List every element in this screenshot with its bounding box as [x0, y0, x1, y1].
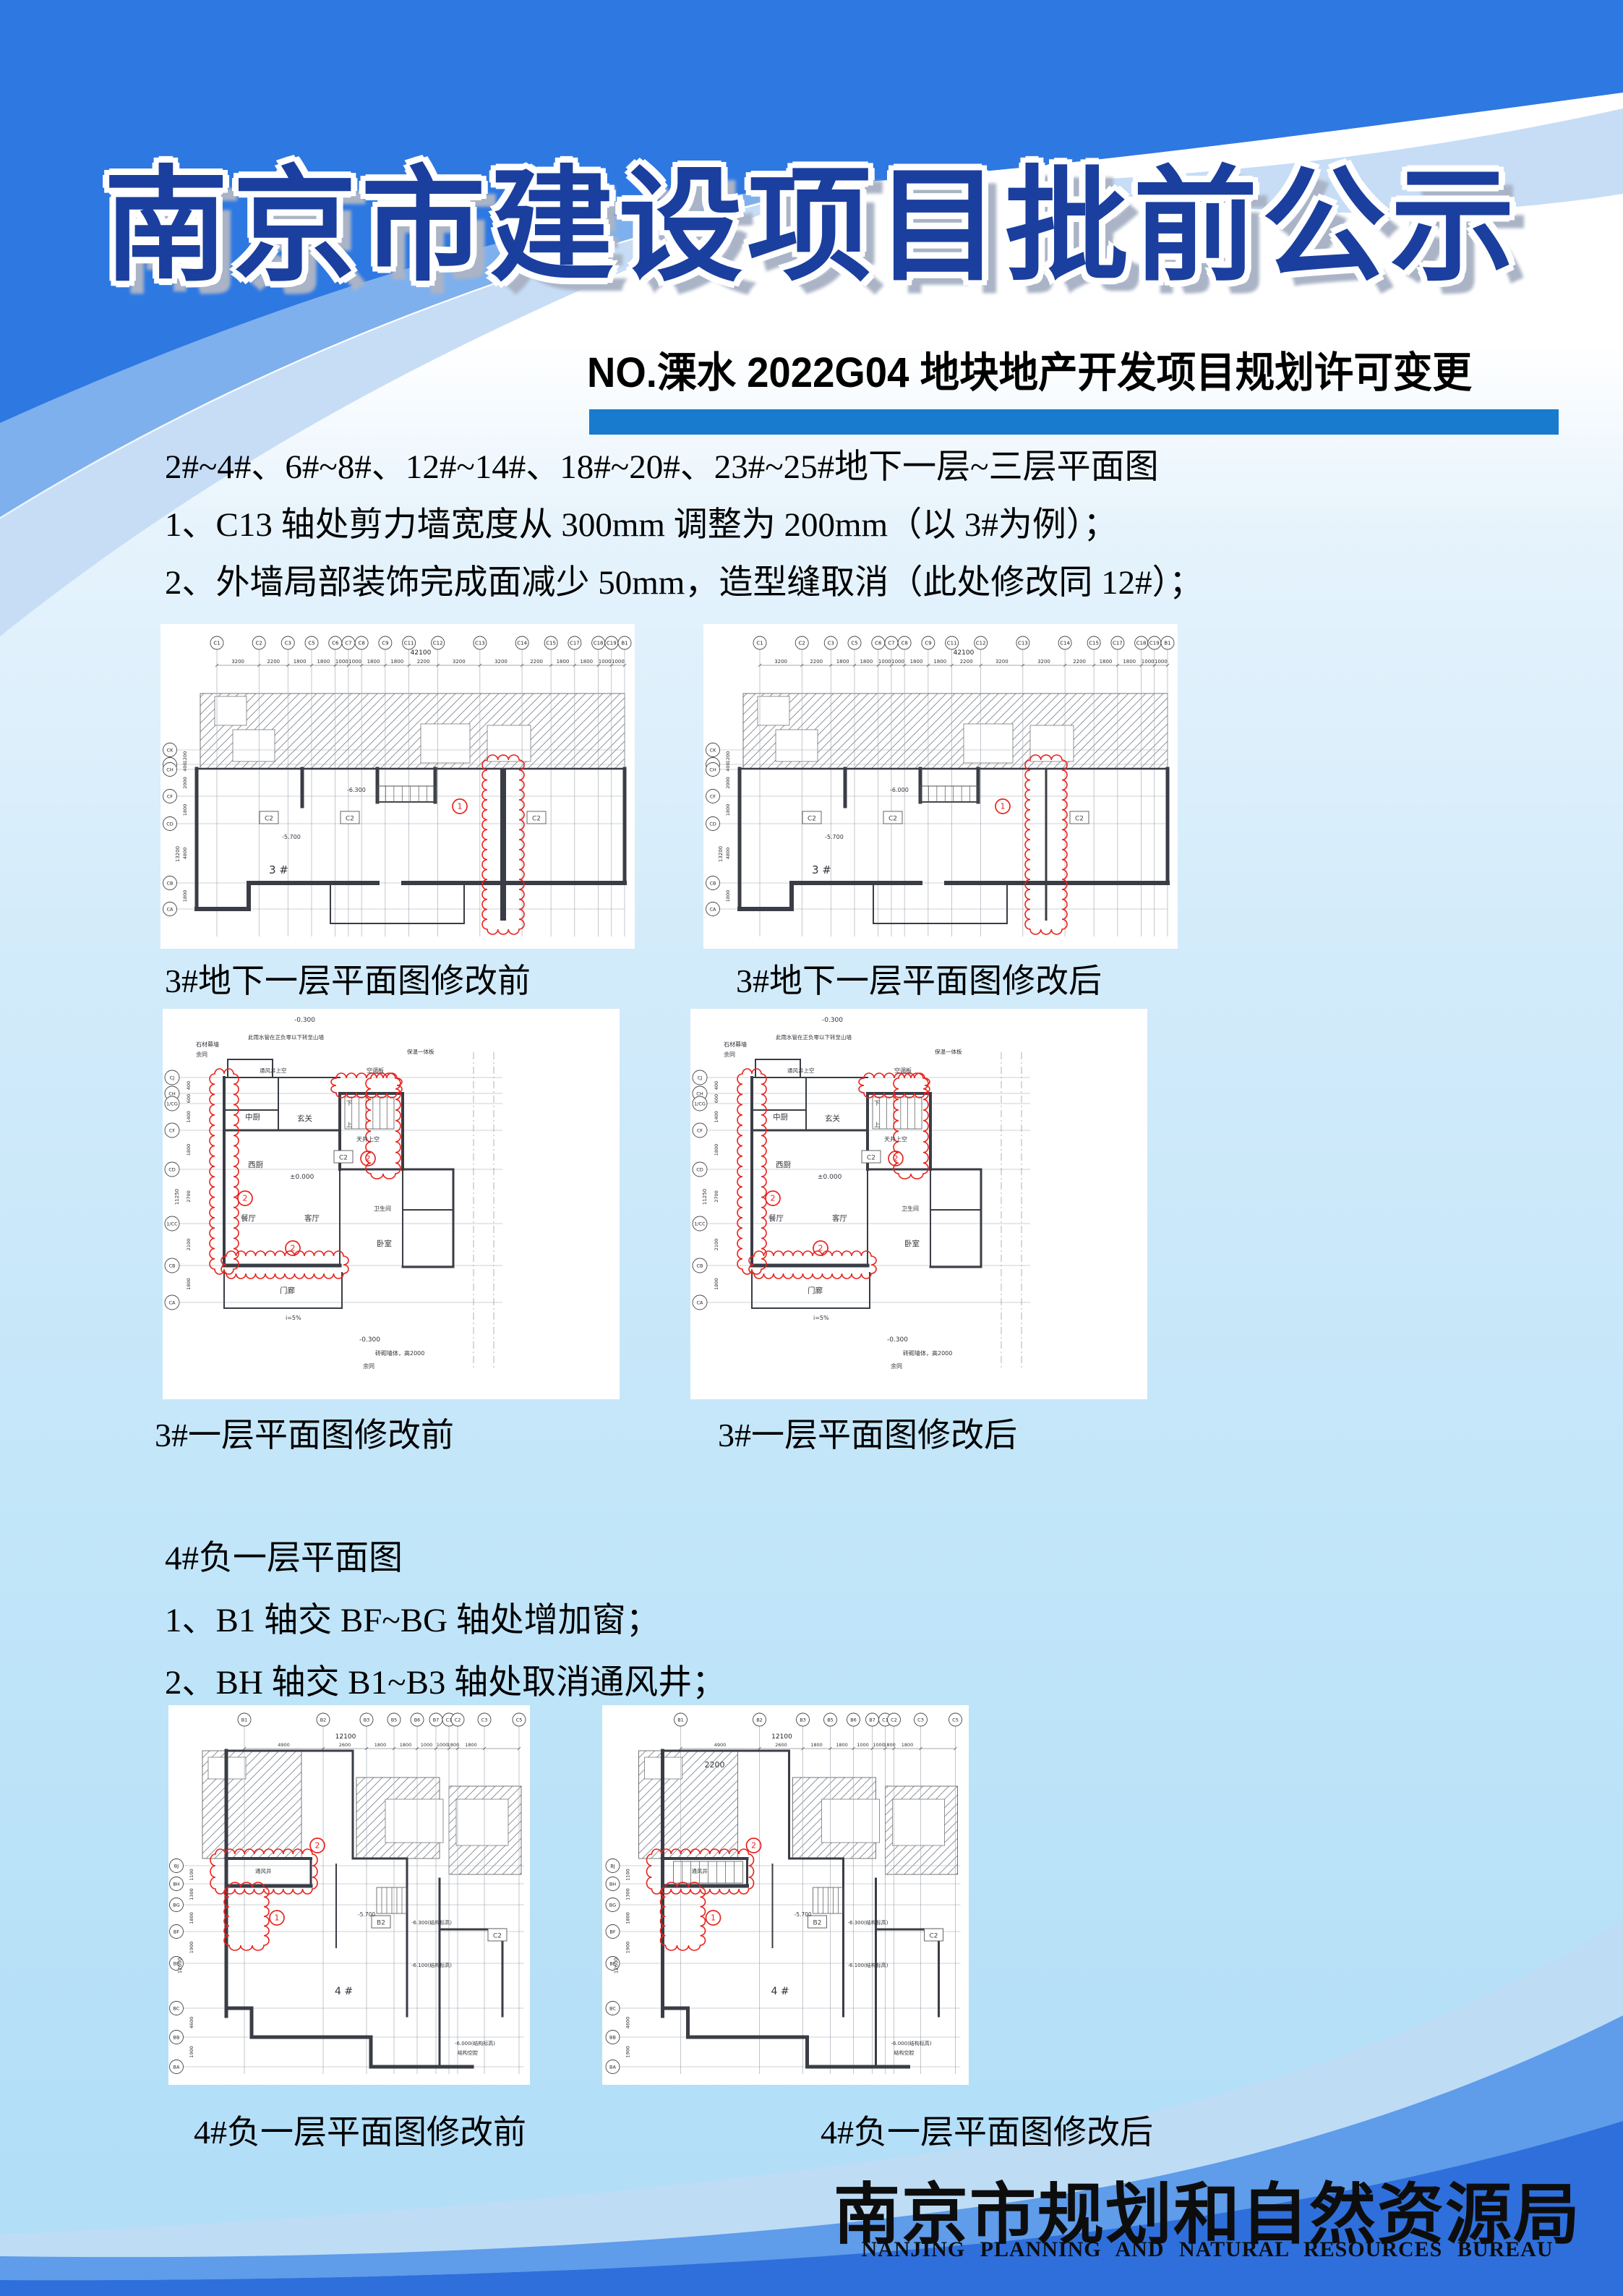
- caption-plan5: 4#负一层平面图修改前: [194, 2106, 526, 2154]
- svg-text:C2: C2: [339, 1155, 348, 1162]
- svg-text:客厅: 客厅: [304, 1213, 320, 1223]
- svg-text:此雨水管在正负零以下转至山墙: 此雨水管在正负零以下转至山墙: [248, 1033, 324, 1041]
- svg-text:1800: 1800: [860, 659, 873, 665]
- svg-text:BH: BH: [609, 1881, 616, 1887]
- caption-plan6: 4#负一层平面图修改后: [821, 2106, 1153, 2154]
- svg-text:B2: B2: [813, 1920, 822, 1927]
- svg-text:1/CG: 1/CG: [694, 1101, 706, 1106]
- svg-text:2600: 2600: [775, 1742, 787, 1748]
- svg-text:2000: 2000: [725, 777, 731, 789]
- svg-text:中厨: 中厨: [773, 1112, 789, 1122]
- svg-text:1/CC: 1/CC: [166, 1221, 178, 1226]
- svg-text:CA: CA: [697, 1299, 704, 1305]
- svg-text:1900: 1900: [189, 2046, 194, 2058]
- svg-text:通风井: 通风井: [255, 1867, 272, 1874]
- caption-plan4: 3#一层平面图修改后: [718, 1409, 1017, 1456]
- svg-text:卫生间: 卫生间: [902, 1205, 919, 1212]
- svg-text:空调板: 空调板: [894, 1067, 912, 1074]
- svg-text:2: 2: [894, 1154, 899, 1164]
- svg-text:-5.700: -5.700: [795, 1911, 812, 1918]
- svg-text:C2: C2: [1075, 816, 1084, 823]
- svg-text:-6.300(结构标高): -6.300(结构标高): [411, 1919, 452, 1926]
- svg-text:BJ: BJ: [610, 1863, 614, 1869]
- caption-plan1: 3#地下一层平面图修改前: [165, 955, 531, 1002]
- svg-text:2: 2: [243, 1194, 248, 1203]
- svg-text:卧室: 卧室: [377, 1239, 392, 1248]
- svg-text:上: 上: [346, 1122, 352, 1128]
- svg-text:B7: B7: [433, 1717, 440, 1723]
- svg-text:1800: 1800: [580, 659, 593, 665]
- svg-text:CB: CB: [167, 880, 174, 886]
- svg-text:C13: C13: [1018, 640, 1028, 646]
- svg-text:12600: 12600: [177, 1958, 183, 1973]
- svg-text:1800: 1800: [465, 1742, 477, 1748]
- svg-text:此雨水管在正负零以下转至山墙: 此雨水管在正负零以下转至山墙: [776, 1033, 852, 1041]
- section1-line2: 1、C13 轴处剪力墙宽度从 300mm 调整为 200mm（以 3#为例）；: [165, 496, 1509, 554]
- svg-text:4900: 4900: [278, 1742, 290, 1748]
- svg-text:C2: C2: [891, 1717, 897, 1723]
- svg-text:400: 400: [182, 762, 188, 771]
- svg-text:2700: 2700: [186, 1190, 192, 1203]
- svg-text:4 #: 4 #: [771, 1986, 789, 1997]
- svg-text:1800: 1800: [186, 1278, 192, 1290]
- svg-text:1100: 1100: [625, 1869, 631, 1881]
- svg-text:C2: C2: [256, 640, 262, 646]
- floor-plan-4-basement-before: B1B2B3B5B6B7C1C2C3C549002600180018001000…: [168, 1705, 530, 2085]
- svg-text:2200: 2200: [417, 659, 430, 665]
- svg-text:2: 2: [315, 1841, 320, 1851]
- floor-plan-drawing: C1C2C3C5C6C7C8C9C11C12C13C14C15C17C18C19…: [160, 624, 635, 949]
- page-title: 南京市建设项目批前公示: [87, 124, 1536, 305]
- svg-text:1800: 1800: [317, 659, 330, 665]
- svg-text:1/CC: 1/CC: [694, 1221, 706, 1226]
- svg-text:BB: BB: [609, 2034, 616, 2040]
- svg-text:1/CG: 1/CG: [166, 1101, 178, 1106]
- section2-line2: 1、B1 轴交 BF~BG 轴处增加窗；: [165, 1589, 1509, 1652]
- svg-text:C13: C13: [475, 640, 485, 646]
- svg-text:2200: 2200: [267, 659, 280, 665]
- svg-text:石材幕墙: 石材幕墙: [196, 1041, 219, 1048]
- svg-text:C3: C3: [285, 640, 291, 646]
- svg-text:C7: C7: [345, 640, 351, 646]
- svg-text:结构空腔: 结构空腔: [458, 2049, 478, 2056]
- svg-text:CH: CH: [709, 767, 716, 772]
- svg-text:C2: C2: [867, 1155, 875, 1162]
- section1-line1: 2#~4#、6#~8#、12#~14#、18#~20#、23#~25#地下一层~…: [165, 438, 1509, 496]
- svg-text:-0.300: -0.300: [359, 1336, 380, 1344]
- svg-text:12100: 12100: [335, 1733, 356, 1741]
- svg-text:C9: C9: [925, 640, 931, 646]
- svg-text:1900: 1900: [625, 1942, 631, 1954]
- svg-text:42100: 42100: [411, 649, 432, 657]
- svg-text:CD: CD: [166, 821, 174, 827]
- svg-text:2: 2: [818, 1244, 823, 1253]
- floor-plan-drawing: CJCH1/CGCFCD1/CCCBCA40060014001800270021…: [690, 1009, 1147, 1399]
- svg-text:CA: CA: [167, 906, 174, 912]
- svg-text:2100: 2100: [714, 1239, 719, 1251]
- svg-text:2200: 2200: [530, 659, 543, 665]
- svg-text:1000: 1000: [878, 659, 891, 665]
- svg-text:余同: 余同: [196, 1051, 207, 1058]
- floor-plan-drawing: B1B2B3B5B6B7C1C2C3C549002600180018001000…: [168, 1705, 530, 2085]
- svg-text:C2: C2: [532, 816, 541, 823]
- svg-text:卧室: 卧室: [904, 1239, 920, 1248]
- svg-text:BA: BA: [174, 2064, 180, 2070]
- svg-text:CF: CF: [169, 1127, 176, 1133]
- svg-text:-6.100(结构标高): -6.100(结构标高): [848, 1962, 888, 1968]
- svg-text:C12: C12: [976, 640, 986, 646]
- svg-text:BH: BH: [173, 1881, 179, 1887]
- svg-text:CB: CB: [697, 1263, 703, 1268]
- svg-text:通风井: 通风井: [692, 1867, 708, 1874]
- svg-text:3200: 3200: [231, 659, 244, 665]
- svg-text:C18: C18: [594, 640, 604, 646]
- svg-text:2: 2: [291, 1244, 296, 1253]
- svg-text:C3: C3: [828, 640, 834, 646]
- svg-text:4 #: 4 #: [335, 1986, 353, 1997]
- svg-text:天井上空: 天井上空: [356, 1135, 380, 1143]
- svg-text:1800: 1800: [1100, 659, 1113, 665]
- svg-text:BF: BF: [609, 1929, 615, 1934]
- svg-text:BG: BG: [609, 1902, 616, 1908]
- svg-text:2600: 2600: [339, 1742, 351, 1748]
- svg-text:C2: C2: [799, 640, 805, 646]
- svg-text:±0.000: ±0.000: [290, 1174, 314, 1181]
- svg-text:C6: C6: [332, 640, 339, 646]
- svg-text:2100: 2100: [186, 1239, 192, 1251]
- svg-text:2: 2: [771, 1194, 776, 1203]
- svg-text:±0.000: ±0.000: [818, 1174, 842, 1181]
- svg-text:通风井上空: 通风井上空: [787, 1067, 815, 1074]
- svg-text:-5.700: -5.700: [282, 834, 301, 840]
- caption-plan2: 3#地下一层平面图修改后: [736, 955, 1102, 1002]
- svg-text:保温一体板: 保温一体板: [935, 1048, 962, 1055]
- svg-text:B5: B5: [827, 1717, 834, 1723]
- svg-text:C2: C2: [493, 1933, 502, 1940]
- svg-text:1: 1: [1001, 802, 1006, 811]
- svg-text:结构空腔: 结构空腔: [894, 2049, 915, 2056]
- svg-text:i=5%: i=5%: [286, 1315, 301, 1321]
- svg-text:CD: CD: [168, 1166, 176, 1172]
- svg-text:3 #: 3 #: [269, 863, 288, 876]
- svg-text:-0.300: -0.300: [887, 1336, 908, 1344]
- svg-text:B2: B2: [320, 1717, 327, 1723]
- svg-text:B2: B2: [377, 1920, 385, 1927]
- svg-text:CF: CF: [710, 793, 716, 799]
- svg-text:西厨: 西厨: [248, 1161, 263, 1169]
- svg-text:砖砌墙体，高2000: 砖砌墙体，高2000: [903, 1349, 952, 1357]
- svg-text:1800: 1800: [1123, 659, 1136, 665]
- svg-text:1300: 1300: [625, 1888, 631, 1900]
- svg-text:BA: BA: [609, 2064, 616, 2070]
- svg-text:13200: 13200: [175, 846, 181, 862]
- svg-text:C14: C14: [1060, 640, 1070, 646]
- floor-plan-3-basement-before: C1C2C3C5C6C7C8C9C11C12C13C14C15C17C18C19…: [160, 624, 635, 949]
- svg-text:1800: 1800: [400, 1742, 412, 1748]
- svg-text:C3: C3: [481, 1717, 488, 1723]
- svg-text:空调板: 空调板: [367, 1067, 384, 1074]
- svg-text:-5.700: -5.700: [825, 834, 844, 840]
- svg-text:余同: 余同: [363, 1362, 374, 1370]
- svg-text:3200: 3200: [1037, 659, 1050, 665]
- svg-text:C18: C18: [1136, 640, 1147, 646]
- svg-text:1800: 1800: [557, 659, 570, 665]
- svg-text:C9: C9: [382, 640, 388, 646]
- svg-text:BB: BB: [174, 2034, 180, 2040]
- svg-text:1800: 1800: [186, 1144, 192, 1156]
- svg-text:B2: B2: [756, 1717, 763, 1723]
- svg-text:C15: C15: [1089, 640, 1099, 646]
- svg-text:1800: 1800: [836, 1742, 848, 1748]
- svg-text:B5: B5: [391, 1717, 398, 1723]
- svg-text:1800: 1800: [883, 1742, 896, 1748]
- svg-text:BC: BC: [174, 2005, 180, 2011]
- change-description-section-2: 4#负一层平面图 1、B1 轴交 BF~BG 轴处增加窗； 2、BH 轴交 B1…: [165, 1527, 1509, 1714]
- svg-text:1800: 1800: [902, 1742, 914, 1748]
- svg-text:600: 600: [714, 1094, 719, 1103]
- floor-plan-3-basement-after: C1C2C3C5C6C7C8C9C11C12C13C14C15C17C18C19…: [703, 624, 1178, 949]
- svg-text:1800: 1800: [294, 659, 307, 665]
- svg-text:1200: 1200: [725, 751, 731, 764]
- section2-line1: 4#负一层平面图: [165, 1527, 1509, 1589]
- svg-text:1000: 1000: [1142, 659, 1155, 665]
- svg-text:400: 400: [725, 762, 731, 771]
- svg-text:C15: C15: [546, 640, 556, 646]
- svg-text:1800: 1800: [182, 890, 188, 902]
- svg-text:BJ: BJ: [174, 1863, 179, 1869]
- svg-text:1800: 1800: [910, 659, 923, 665]
- svg-text:2200: 2200: [810, 659, 823, 665]
- svg-text:C11: C11: [404, 640, 414, 646]
- svg-text:CA: CA: [710, 906, 717, 912]
- svg-text:保温一体板: 保温一体板: [407, 1048, 434, 1055]
- svg-text:1800: 1800: [725, 804, 731, 816]
- svg-text:1: 1: [275, 1913, 280, 1923]
- svg-text:CA: CA: [169, 1299, 176, 1305]
- svg-text:1900: 1900: [189, 1942, 194, 1954]
- svg-text:C2: C2: [346, 816, 354, 823]
- svg-text:C7: C7: [888, 640, 894, 646]
- svg-text:CB: CB: [710, 880, 716, 886]
- floor-plan-drawing: CJCH1/CGCFCD1/CCCBCA40060014001800270021…: [163, 1009, 620, 1399]
- svg-text:1000: 1000: [891, 659, 904, 665]
- svg-text:餐厅: 餐厅: [241, 1213, 256, 1223]
- svg-text:42100: 42100: [954, 649, 975, 657]
- svg-text:CJ: CJ: [170, 1075, 175, 1080]
- floor-plan-drawing: C1C2C3C5C6C7C8C9C11C12C13C14C15C17C18C19…: [703, 624, 1178, 949]
- svg-text:1: 1: [711, 1913, 716, 1923]
- change-description-section-1: 2#~4#、6#~8#、12#~14#、18#~20#、23#~25#地下一层~…: [165, 438, 1509, 612]
- svg-text:西厨: 西厨: [776, 1161, 792, 1169]
- svg-text:B1: B1: [677, 1717, 684, 1723]
- svg-text:C12: C12: [433, 640, 443, 646]
- project-subtitle: NO.溧水 2022G04 地块地产开发项目规划许可变更: [587, 338, 1538, 399]
- svg-text:1800: 1800: [182, 804, 188, 816]
- svg-text:下: 下: [874, 1100, 880, 1106]
- svg-text:2200: 2200: [960, 659, 973, 665]
- svg-text:-0.300: -0.300: [822, 1017, 843, 1024]
- svg-text:1800: 1800: [189, 1912, 194, 1924]
- svg-text:C2: C2: [265, 816, 273, 823]
- svg-text:11250: 11250: [702, 1189, 708, 1205]
- svg-text:4800: 4800: [725, 848, 731, 860]
- svg-text:中厨: 中厨: [245, 1112, 260, 1122]
- svg-text:B7: B7: [869, 1717, 875, 1723]
- svg-text:CH: CH: [168, 1091, 176, 1096]
- svg-text:C1: C1: [213, 640, 220, 646]
- svg-text:余同: 余同: [724, 1051, 735, 1058]
- svg-text:CK: CK: [710, 747, 717, 753]
- floor-plan-3-first-before: CJCH1/CGCFCD1/CCCBCA40060014001800270021…: [163, 1009, 620, 1399]
- svg-text:1000: 1000: [1155, 659, 1168, 665]
- svg-text:砖砌墙体，高2000: 砖砌墙体，高2000: [375, 1349, 424, 1357]
- svg-text:1000: 1000: [335, 659, 348, 665]
- svg-text:2700: 2700: [714, 1190, 719, 1203]
- svg-text:1800: 1800: [810, 1742, 823, 1748]
- svg-text:B1: B1: [1164, 640, 1170, 646]
- svg-text:卫生间: 卫生间: [374, 1205, 391, 1212]
- svg-text:1800: 1800: [374, 1742, 387, 1748]
- svg-text:C3: C3: [917, 1717, 924, 1723]
- svg-text:3200: 3200: [774, 659, 787, 665]
- svg-text:C5: C5: [516, 1717, 523, 1723]
- svg-text:4600: 4600: [625, 2017, 631, 2029]
- svg-text:C17: C17: [570, 640, 580, 646]
- svg-text:1400: 1400: [714, 1111, 719, 1123]
- svg-text:1800: 1800: [933, 659, 946, 665]
- svg-text:12100: 12100: [771, 1733, 792, 1741]
- svg-text:1900: 1900: [625, 2046, 631, 2058]
- svg-text:-6.000(结构标高): -6.000(结构标高): [891, 2040, 932, 2047]
- svg-text:C2: C2: [808, 816, 816, 823]
- floor-plan-3-first-after: CJCH1/CGCFCD1/CCCBCA40060014001800270021…: [690, 1009, 1147, 1399]
- svg-text:1300: 1300: [189, 1888, 194, 1900]
- svg-text:下: 下: [346, 1100, 352, 1106]
- svg-text:1800: 1800: [625, 1912, 631, 1924]
- svg-text:C14: C14: [517, 640, 527, 646]
- svg-text:-6.000(结构标高): -6.000(结构标高): [455, 2040, 495, 2047]
- svg-text:-6.300(结构标高): -6.300(结构标高): [848, 1919, 888, 1926]
- svg-text:CH: CH: [696, 1091, 703, 1096]
- svg-text:CH: CH: [166, 767, 174, 772]
- svg-text:C19: C19: [1149, 640, 1160, 646]
- svg-text:3200: 3200: [453, 659, 466, 665]
- svg-text:玄关: 玄关: [825, 1114, 841, 1123]
- svg-text:CF: CF: [167, 793, 174, 799]
- svg-text:4900: 4900: [714, 1742, 727, 1748]
- svg-text:C2: C2: [455, 1717, 461, 1723]
- svg-text:4600: 4600: [189, 2017, 194, 2029]
- svg-text:2200: 2200: [705, 1760, 725, 1770]
- floor-plan-4-basement-after: B1B2B3B5B6B7C1C2C3C549002600180018001000…: [602, 1705, 969, 2085]
- issuing-authority-en: NANJING PLANNING AND NATURAL RESOURCES B…: [799, 2237, 1616, 2262]
- svg-text:1800: 1800: [714, 1278, 719, 1290]
- svg-text:B3: B3: [800, 1717, 806, 1723]
- svg-text:门廊: 门廊: [808, 1286, 823, 1295]
- svg-text:1800: 1800: [447, 1742, 460, 1748]
- svg-text:1800: 1800: [714, 1144, 719, 1156]
- svg-text:C19: C19: [607, 640, 617, 646]
- svg-text:CD: CD: [696, 1166, 703, 1172]
- svg-text:门廊: 门廊: [280, 1286, 295, 1295]
- svg-text:12600: 12600: [614, 1958, 620, 1973]
- svg-text:1000: 1000: [348, 659, 361, 665]
- svg-text:1800: 1800: [367, 659, 380, 665]
- svg-text:CD: CD: [709, 821, 716, 827]
- svg-text:通风井上空: 通风井上空: [260, 1067, 287, 1074]
- svg-text:-5.700: -5.700: [358, 1911, 375, 1918]
- svg-text:B1: B1: [241, 1717, 248, 1723]
- svg-text:BG: BG: [173, 1902, 179, 1908]
- svg-text:B6: B6: [414, 1717, 421, 1723]
- svg-text:-6.300: -6.300: [347, 787, 366, 793]
- svg-text:石材幕墙: 石材幕墙: [724, 1041, 747, 1048]
- svg-text:400: 400: [714, 1081, 719, 1090]
- svg-text:-0.300: -0.300: [294, 1017, 315, 1024]
- svg-text:B3: B3: [364, 1717, 370, 1723]
- svg-text:1400: 1400: [186, 1111, 192, 1123]
- svg-text:CJ: CJ: [698, 1075, 703, 1080]
- svg-text:1: 1: [458, 802, 463, 811]
- section1-line3: 2、外墙局部装饰完成面减少 50mm，造型缝取消（此处修改同 12#）；: [165, 554, 1509, 612]
- announcement-poster: 南京市建设项目批前公示 NO.溧水 2022G04 地块地产开发项目规划许可变更…: [0, 0, 1623, 2296]
- caption-plan3: 3#一层平面图修改前: [155, 1409, 454, 1456]
- svg-text:上: 上: [874, 1122, 880, 1128]
- svg-text:600: 600: [186, 1094, 192, 1103]
- svg-text:BF: BF: [174, 1929, 179, 1934]
- svg-text:餐厅: 餐厅: [768, 1213, 784, 1223]
- svg-text:C8: C8: [901, 640, 907, 646]
- svg-text:C8: C8: [358, 640, 364, 646]
- svg-text:3200: 3200: [494, 659, 508, 665]
- svg-text:1000: 1000: [421, 1742, 433, 1748]
- svg-text:1000: 1000: [599, 659, 612, 665]
- svg-text:1100: 1100: [189, 1869, 194, 1881]
- svg-text:2: 2: [751, 1841, 756, 1851]
- svg-text:11250: 11250: [174, 1189, 180, 1205]
- svg-text:2000: 2000: [182, 777, 188, 789]
- svg-text:C6: C6: [875, 640, 882, 646]
- svg-text:CK: CK: [167, 747, 174, 753]
- svg-text:400: 400: [186, 1081, 192, 1090]
- svg-text:B1: B1: [621, 640, 628, 646]
- svg-text:C5: C5: [308, 640, 314, 646]
- svg-text:B6: B6: [850, 1717, 857, 1723]
- svg-text:天井上空: 天井上空: [884, 1135, 907, 1143]
- svg-text:3 #: 3 #: [812, 863, 831, 876]
- svg-text:-6.100(结构标高): -6.100(结构标高): [411, 1962, 452, 1968]
- svg-text:C5: C5: [952, 1717, 959, 1723]
- svg-text:C17: C17: [1113, 640, 1123, 646]
- svg-text:3200: 3200: [995, 659, 1009, 665]
- svg-text:BC: BC: [609, 2005, 616, 2011]
- svg-text:CB: CB: [169, 1263, 176, 1268]
- floor-plan-drawing: B1B2B3B5B6B7C1C2C3C549002600180018001000…: [602, 1705, 969, 2085]
- svg-text:2200: 2200: [1073, 659, 1086, 665]
- svg-text:CF: CF: [697, 1127, 703, 1133]
- svg-text:玄关: 玄关: [297, 1114, 312, 1123]
- svg-text:C2: C2: [888, 816, 897, 823]
- svg-text:13200: 13200: [718, 846, 724, 862]
- svg-text:1800: 1800: [390, 659, 403, 665]
- svg-text:1800: 1800: [725, 890, 731, 902]
- svg-text:客厅: 客厅: [832, 1213, 847, 1223]
- svg-text:C5: C5: [851, 640, 857, 646]
- svg-text:C2: C2: [929, 1933, 938, 1940]
- svg-text:-6.000: -6.000: [890, 787, 909, 793]
- svg-text:余同: 余同: [891, 1362, 902, 1370]
- svg-text:1200: 1200: [182, 751, 188, 764]
